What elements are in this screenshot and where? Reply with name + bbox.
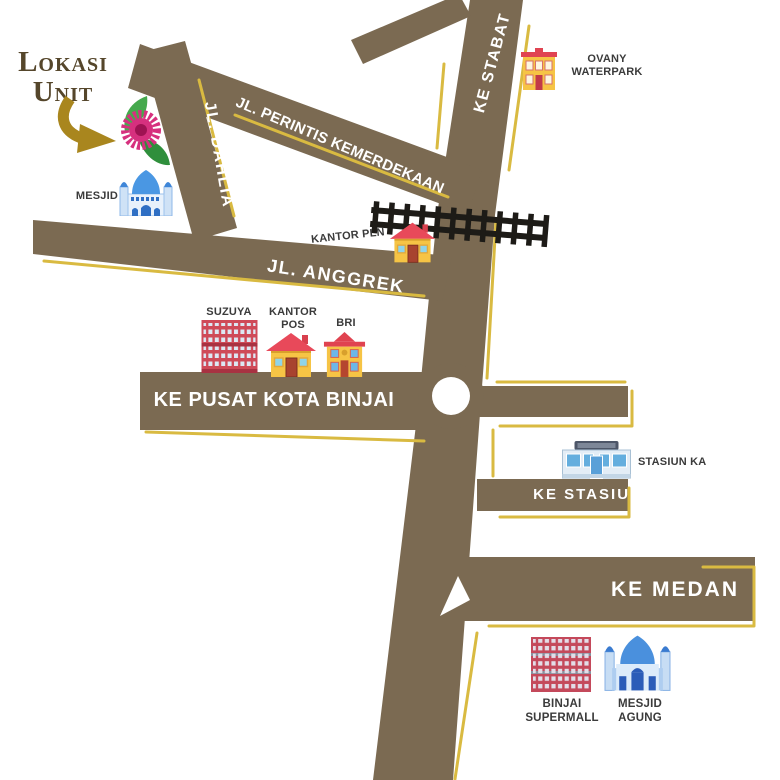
- road-label-ke-pusat-kota-binjai: KE PUSAT KOTA BINJAI: [148, 390, 400, 410]
- road-label-ke-medan: KE MEDAN: [605, 579, 745, 600]
- road-to-station-area-shape: [468, 386, 628, 417]
- label-mesjid-agung: MESJID AGUNG: [605, 698, 675, 726]
- roundabout-island: [432, 377, 470, 415]
- mall-icon: [531, 637, 591, 692]
- mosque-icon: [118, 166, 174, 216]
- mall-icon: [201, 320, 258, 373]
- road-label-ke-stasiun: KE STASIUN: [523, 487, 653, 502]
- location-flower-icon: [110, 94, 172, 168]
- label-mesjid: MESJID: [56, 190, 118, 203]
- label-bri: BRI: [321, 317, 371, 330]
- station-icon: [561, 441, 632, 479]
- label-ovany-waterpark: OVANY WATERPARK: [566, 53, 648, 79]
- label-stasiun-ka: STASIUN KA: [638, 456, 712, 469]
- mosque-icon: [604, 633, 671, 691]
- road-top-stub-shape: [351, 0, 471, 64]
- house-icon: [389, 221, 436, 263]
- house-icon: [265, 332, 317, 377]
- legend-title-line1: Lokasi: [0, 48, 126, 78]
- building-icon: [521, 48, 557, 90]
- label-binjai-supermall: BINJAI SUPERMALL: [520, 698, 604, 726]
- label-suzuya: SUZUYA: [198, 306, 260, 319]
- location-map: Lokasi Unit: [0, 0, 780, 780]
- bank-icon: [322, 330, 367, 377]
- label-kantor-pos: KANTOR POS: [260, 306, 326, 332]
